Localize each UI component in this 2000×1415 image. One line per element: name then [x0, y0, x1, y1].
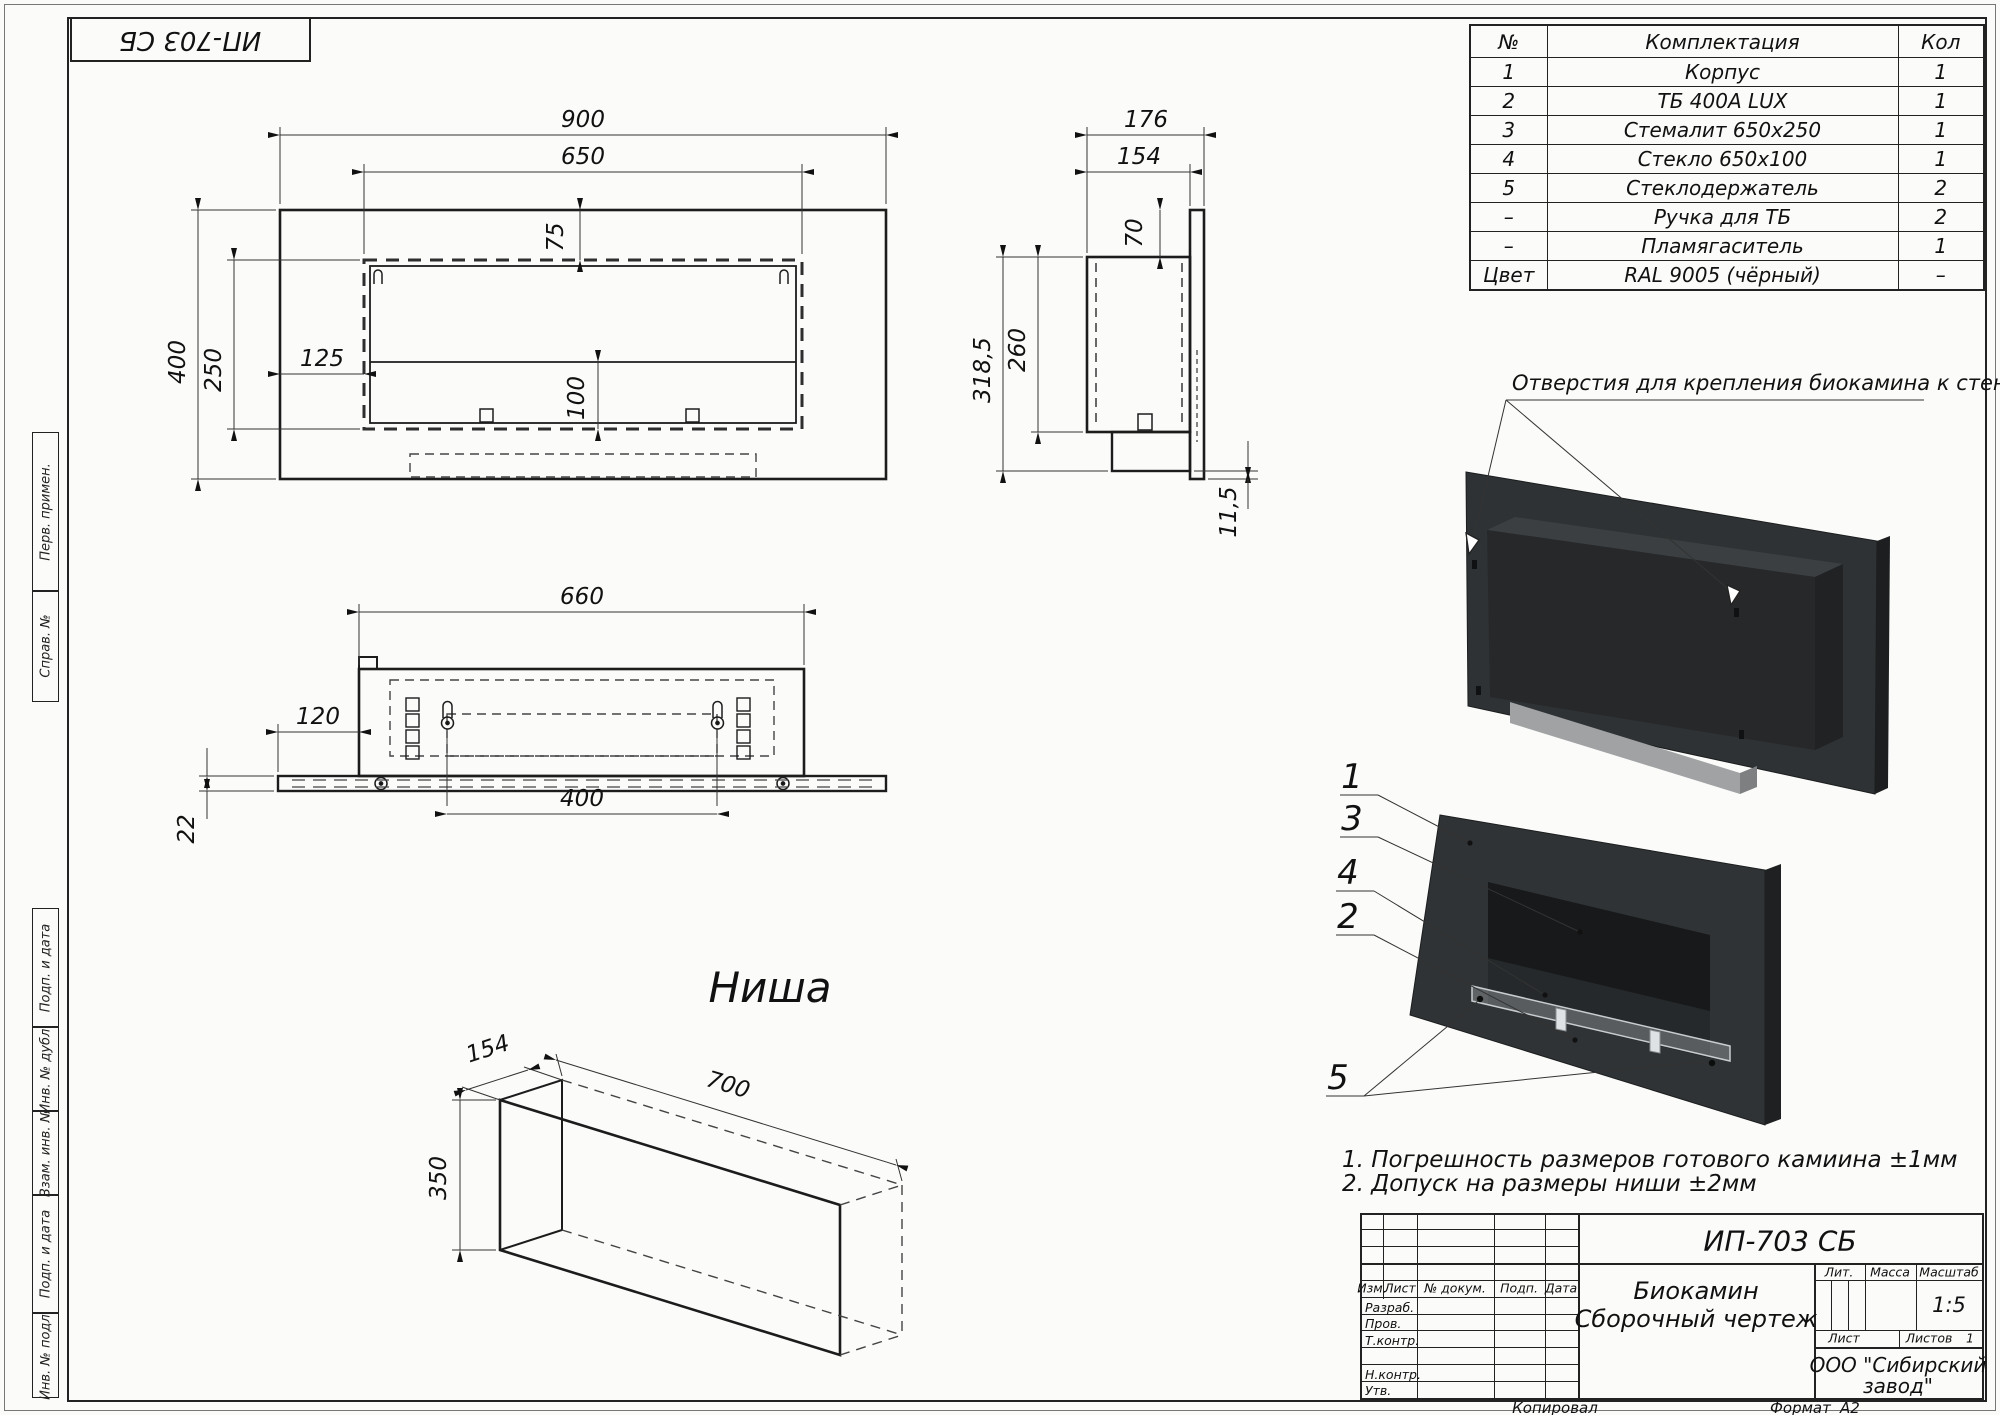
dim-bottom-offset: 120	[296, 704, 340, 730]
holes-note: Отверстия для крепления биокамина к стен…	[1512, 371, 2000, 395]
drawing-canvas: 900 650 75 400 250 125 100	[0, 0, 2000, 1415]
dim-side-plate-offset: 11,5	[1216, 486, 1242, 537]
dim-bottom-length: 660	[560, 584, 604, 610]
dim-bottom-plate: 22	[174, 814, 200, 843]
tb-row-utv: Утв.	[1365, 1383, 1391, 1398]
drawing-sheet: ИП-703 СБ Перв. примен. Справ. № Подп. и…	[0, 0, 2000, 1415]
tb-mass-label: Масса	[1870, 1265, 1910, 1280]
dim-side-total-height: 318,5	[970, 337, 996, 403]
format-value: А2	[1840, 1399, 1860, 1415]
tb-designation: ИП-703 СБ	[1703, 1225, 1856, 1258]
dim-niche-height: 350	[426, 1156, 452, 1200]
dim-side-box-depth: 154	[1117, 144, 1161, 170]
front-view: 900 650 75 400 250 125 100	[165, 107, 886, 479]
niche-view: Ниша 154 350 700	[426, 963, 902, 1355]
tb-sheets-value: 1	[1966, 1331, 1974, 1346]
dim-front-burner: 100	[564, 376, 590, 420]
tb-doc-name-2: Сборочный чертеж	[1575, 1305, 1818, 1333]
render-front-view: 1 3 4 2 5	[1326, 757, 1781, 1125]
dim-front-height: 400	[165, 340, 191, 384]
note-2: 2. Допуск на размеры ниши ±2мм	[1342, 1171, 1757, 1197]
tb-col-dokum: № докум.	[1424, 1281, 1486, 1296]
dim-bottom-mount: 400	[560, 786, 604, 812]
tb-col-podp: Подп.	[1500, 1281, 1538, 1296]
tb-col-izm: Изм.	[1357, 1281, 1386, 1296]
dim-side-depth: 176	[1124, 107, 1168, 133]
dim-side-top-offset: 70	[1122, 218, 1148, 247]
tb-scale-value: 1:5	[1932, 1293, 1966, 1317]
tb-sheets-label: Листов	[1906, 1331, 1953, 1346]
dim-front-inset-top: 75	[543, 222, 569, 251]
tb-scale-label: Масштаб	[1919, 1265, 1978, 1280]
callout-1: 1	[1341, 757, 1363, 797]
render-back-view: Отверстия для крепления биокамина к стен…	[1466, 371, 2000, 794]
tb-row-prov: Пров.	[1365, 1316, 1401, 1331]
dim-side-box-height: 260	[1005, 328, 1031, 372]
technical-notes: 1. Погрешность размеров готового камиина…	[1342, 1147, 1958, 1197]
callout-5: 5	[1327, 1058, 1349, 1098]
callout-4: 4	[1337, 853, 1359, 893]
dim-front-width: 900	[561, 107, 605, 133]
title-block: ИП-703 СБ Биокамин Сборочный чертеж Лит.…	[1360, 1213, 1984, 1400]
side-view: 176 154 70 260 318,5 11,5	[970, 107, 1258, 538]
tb-row-razrab: Разраб.	[1365, 1300, 1414, 1315]
tb-doc-name-1: Биокамин	[1633, 1277, 1758, 1305]
copied-label: Копировал	[1480, 1399, 1630, 1415]
format-label: Формат	[1770, 1399, 1831, 1415]
tb-row-tkontr: Т.контр.	[1365, 1333, 1419, 1348]
tb-company-2: завод"	[1863, 1374, 1933, 1398]
callout-3: 3	[1341, 799, 1363, 839]
tb-col-data: Дата	[1545, 1281, 1577, 1296]
tb-row-nkontr: Н.контр.	[1365, 1367, 1421, 1382]
tb-col-list: Лист	[1384, 1281, 1416, 1296]
dim-front-inset-left: 125	[300, 346, 344, 372]
callout-2: 2	[1337, 897, 1359, 937]
dim-front-glass-height: 250	[201, 348, 227, 392]
note-1: 1. Погрешность размеров готового камиина…	[1342, 1147, 1958, 1173]
dim-niche-depth: 154	[463, 1030, 513, 1068]
dim-front-glass-width: 650	[561, 144, 605, 170]
dim-niche-length: 700	[703, 1066, 753, 1104]
niche-title: Ниша	[708, 963, 831, 1012]
bottom-view: 660 120 22 400	[174, 584, 886, 844]
tb-sheet-label: Лист	[1828, 1331, 1860, 1346]
tb-lit-label: Лит.	[1825, 1265, 1854, 1280]
